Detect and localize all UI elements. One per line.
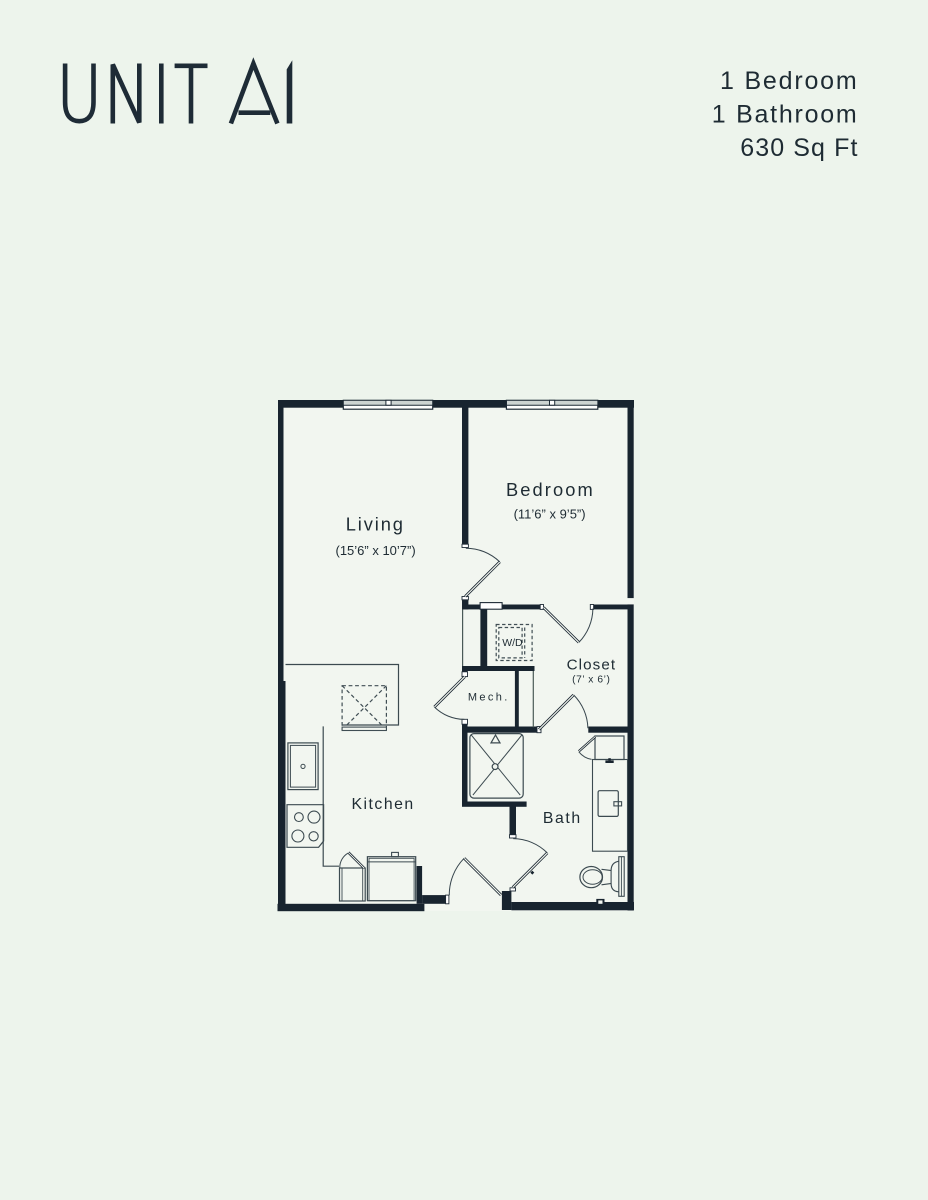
svg-text:630 Sq Ft: 630 Sq Ft bbox=[740, 134, 858, 162]
svg-text:1 Bedroom: 1 Bedroom bbox=[720, 67, 859, 95]
svg-text:Kitchen: Kitchen bbox=[351, 796, 414, 813]
svg-text:Bedroom: Bedroom bbox=[506, 479, 595, 500]
svg-text:Closet: Closet bbox=[567, 657, 617, 674]
svg-text:(15’6” x 10’7”): (15’6” x 10’7”) bbox=[335, 543, 415, 558]
svg-text:W/D: W/D bbox=[502, 637, 523, 649]
svg-text:Mech.: Mech. bbox=[468, 691, 510, 703]
svg-text:Bath: Bath bbox=[543, 810, 582, 827]
svg-text:(7’ x 6’): (7’ x 6’) bbox=[572, 675, 610, 686]
svg-text:1 Bathroom: 1 Bathroom bbox=[712, 101, 859, 129]
svg-text:(11’6” x 9’5”): (11’6” x 9’5”) bbox=[514, 507, 586, 522]
svg-text:Living: Living bbox=[346, 514, 405, 535]
